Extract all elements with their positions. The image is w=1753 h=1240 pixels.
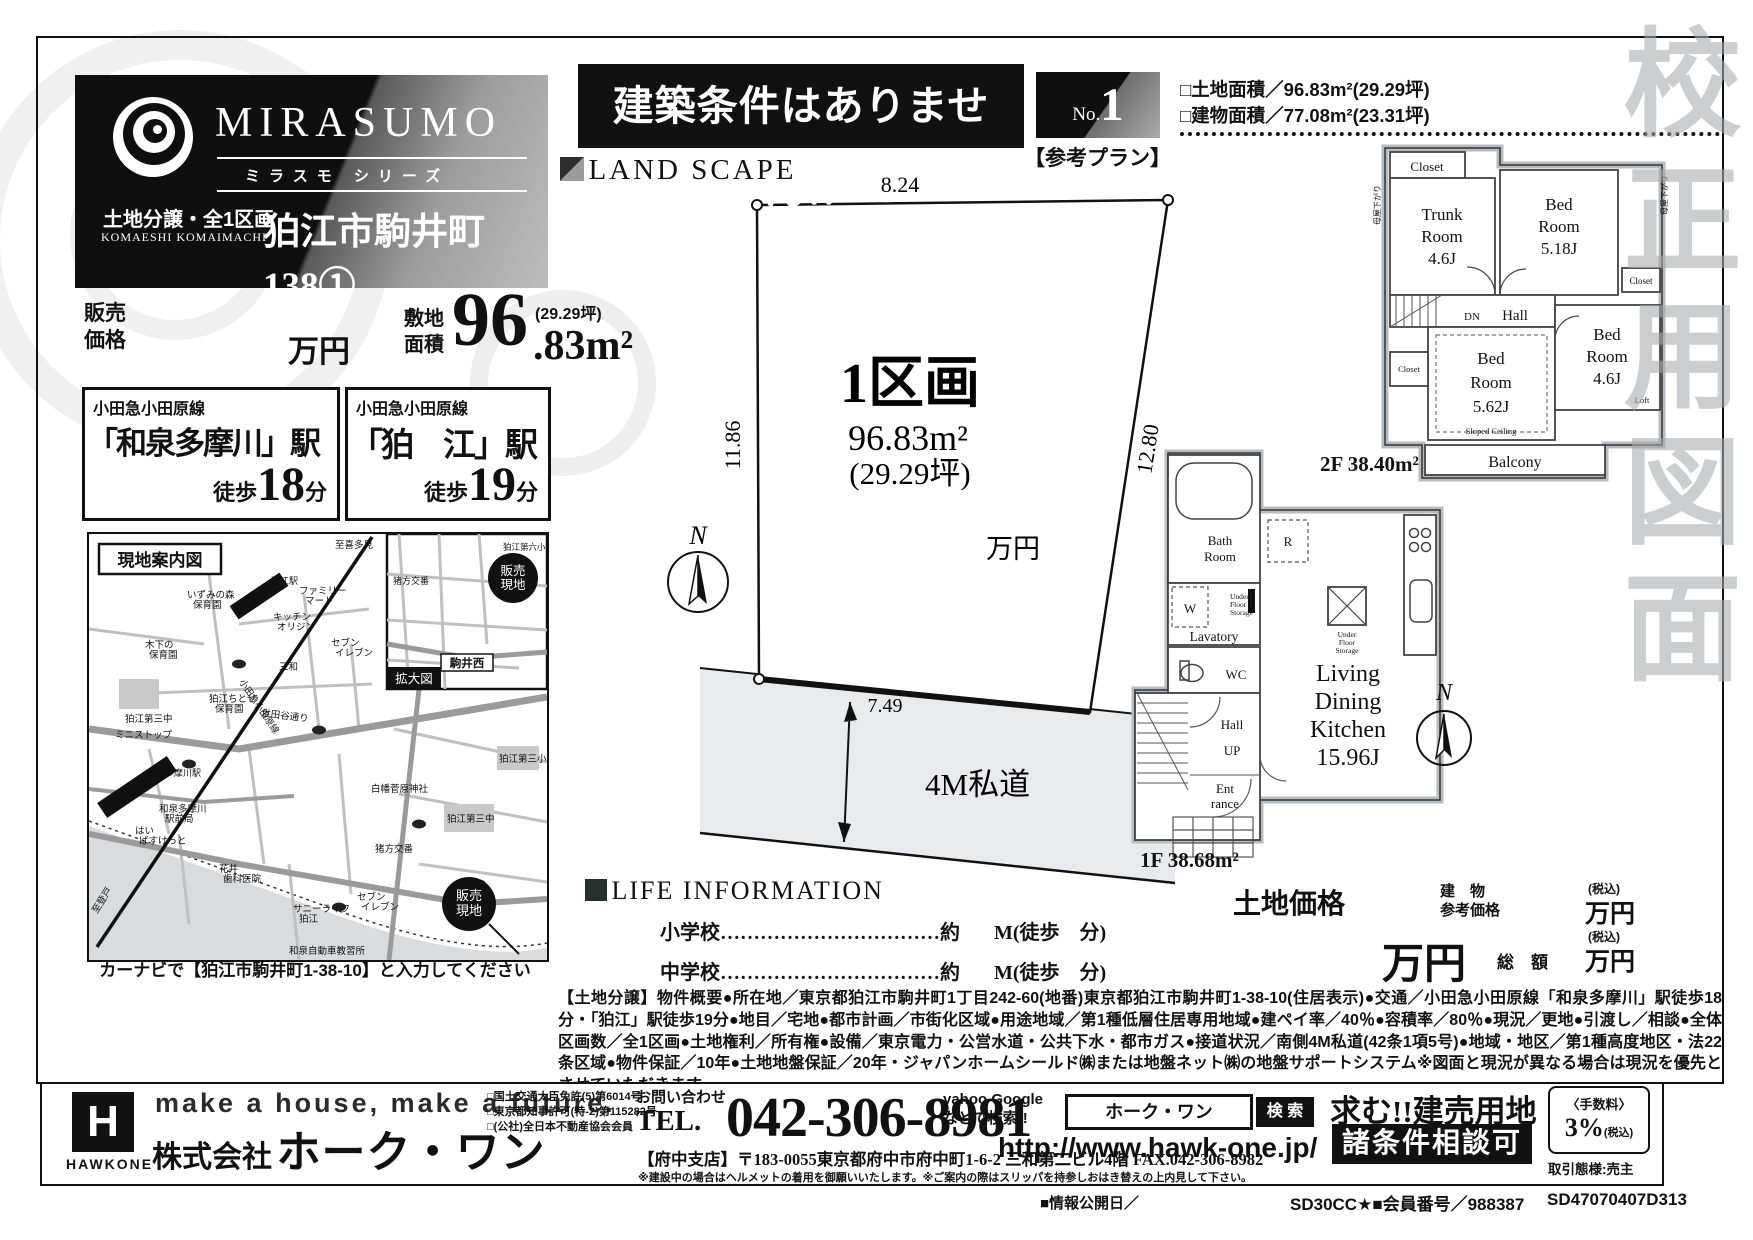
svg-text:DN: DN — [1464, 311, 1480, 323]
negotiable-label: 諸条件相談可 — [1332, 1124, 1532, 1164]
svg-text:Bed: Bed — [1593, 325, 1621, 344]
website-url: http://www.hawk-one.jp/ — [998, 1132, 1317, 1164]
hawkone-logo-name: HAWKONE — [66, 1156, 153, 1172]
svg-text:Trunk: Trunk — [1422, 205, 1463, 224]
site-area-value-small: .83m² — [533, 322, 633, 370]
station-box-izumitamagawa: 小田急小田原線 「和泉多摩川」駅 徒歩18分 — [82, 387, 340, 521]
fee-box: 〈手数料〉 3%(税込) — [1548, 1086, 1650, 1154]
inset-tag: 拡大図 — [395, 672, 433, 686]
document-code: SD47070407D313 — [1547, 1190, 1687, 1210]
svg-text:販売: 販売 — [456, 888, 482, 903]
brand-rule — [217, 190, 527, 192]
svg-text:Bath: Bath — [1208, 533, 1233, 548]
land-plot-diagram: 8.24 11.86 12.80 7.49 4M私道 1区画 96.83m² (… — [555, 150, 1215, 890]
svg-text:4.6J: 4.6J — [1428, 249, 1456, 268]
sale-site-marker: 販売 現地 — [442, 877, 519, 954]
svg-text:マート: マート — [305, 596, 334, 607]
reference-plan-label: 【参考プラン】 — [1024, 142, 1171, 172]
svg-text:猪方交番: 猪方交番 — [393, 575, 429, 586]
section-bullet-icon — [585, 879, 607, 901]
svg-text:Closet: Closet — [1629, 276, 1653, 286]
rail-line-label: 小田急小田原線 — [93, 395, 205, 419]
svg-text:保育園: 保育園 — [149, 649, 178, 661]
life-info-row: 中学校……………………………約M(徒歩 分) — [660, 956, 1106, 985]
svg-text:現地: 現地 — [500, 578, 526, 592]
svg-text:Storage: Storage — [1230, 608, 1254, 617]
floor-plan-2f: Closet Trunk Room 4.6J Bed Room 5.18J Cl… — [1370, 140, 1670, 490]
svg-text:歯科医院: 歯科医院 — [223, 873, 262, 885]
svg-text:Lavatory: Lavatory — [1190, 629, 1239, 644]
site-area-tsubo: (29.29坪) — [535, 300, 602, 324]
svg-text:狛江第三中: 狛江第三中 — [125, 713, 173, 725]
svg-text:駒井西: 駒井西 — [450, 656, 485, 670]
svg-text:母屋下がり: 母屋下がり — [1372, 185, 1382, 225]
svg-text:Hall: Hall — [1502, 308, 1528, 324]
svg-text:15.96J: 15.96J — [1316, 745, 1379, 771]
svg-text:WC: WC — [1226, 667, 1247, 682]
search-button: 検 索 — [1256, 1097, 1314, 1127]
life-info-heading: LIFE INFORMATION — [585, 876, 884, 906]
svg-text:rance: rance — [1211, 796, 1239, 811]
floor-plan-1f: Bath Room W Under Floor Storage Lavatory… — [1120, 445, 1480, 865]
svg-text:オリジン: オリジン — [277, 622, 315, 633]
road-label: 4M私道 — [925, 767, 1030, 802]
svg-text:Closet: Closet — [1410, 159, 1444, 174]
svg-text:Closet: Closet — [1398, 364, 1420, 374]
svg-text:Storage: Storage — [1336, 646, 1360, 655]
svg-text:W: W — [1184, 601, 1197, 616]
mirasumo-logo-icon — [113, 97, 193, 177]
footer-note: ※建設中の場合はヘルメットの着用を御願いいたします。※ご案内の際はスリッパを持参… — [638, 1169, 1252, 1185]
compass-icon: N — [668, 521, 728, 612]
svg-text:猪方交番: 猪方交番 — [375, 843, 414, 855]
brand-category: 土地分譲・全1区画 — [103, 203, 274, 232]
svg-text:Bed: Bed — [1545, 195, 1573, 214]
map-inset: 狛江第六小 猪方交番 販売 現地 駒井西 拡大図 — [387, 534, 547, 689]
svg-text:母屋下がり: 母屋下がり — [1659, 175, 1669, 215]
map-title: 現地案内図 — [99, 544, 221, 574]
plot-area: 96.83m² — [848, 418, 968, 458]
svg-text:Hall: Hall — [1221, 717, 1244, 732]
svg-text:Room: Room — [1586, 347, 1628, 366]
plot-tsubo: (29.29坪) — [849, 456, 970, 491]
dim-left: 11.86 — [720, 421, 745, 470]
svg-text:現地: 現地 — [456, 903, 482, 918]
building-price-unit: 万円 — [1585, 894, 1635, 930]
svg-text:三和: 三和 — [279, 662, 298, 673]
search-keyword-box: ホーク・ワン — [1065, 1094, 1253, 1130]
land-price-unit: 万円 — [1382, 930, 1466, 991]
compass-icon: N — [1412, 678, 1476, 774]
brand-name: MIRASUMO — [215, 99, 502, 147]
brand-series: ミラスモ シリーズ — [245, 165, 449, 186]
svg-text:保育園: 保育園 — [193, 599, 222, 611]
svg-text:現地案内図: 現地案内図 — [118, 550, 203, 570]
svg-text:Balcony: Balcony — [1488, 454, 1541, 471]
brand-rule — [217, 157, 527, 159]
info-date-label: ■情報公開日／ — [1040, 1192, 1139, 1213]
rail-line-label: 小田急小田原線 — [356, 395, 468, 419]
landscape-heading: LAND SCAPE — [560, 154, 797, 187]
walk-time: 徒歩19分 — [424, 457, 538, 512]
plot-name: 1区画 — [840, 353, 980, 415]
section-bullet-icon — [560, 157, 584, 181]
svg-text:イレブン: イレブン — [361, 901, 399, 913]
dim-bottom: 7.49 — [868, 695, 903, 717]
svg-text:Living: Living — [1316, 661, 1380, 687]
svg-text:Room: Room — [1538, 217, 1580, 236]
life-info-row: 小学校……………………………約M(徒歩 分) — [660, 916, 1106, 945]
flyer-page: MIRASUMO ミラスモ シリーズ 土地分譲・全1区画 KOMAESHI KO… — [0, 0, 1753, 1240]
building-ref-price-label: 建 物 参考価格 — [1440, 882, 1500, 920]
total-label: 総 額 — [1497, 948, 1548, 973]
total-price-unit: 万円 — [1585, 942, 1635, 978]
land-area-line: □土地面積／96.83m²(29.29坪) — [1180, 76, 1430, 102]
price-label: 販売 価格 — [84, 300, 126, 354]
search-hint: yahoo Google などで検索!! — [943, 1090, 1043, 1128]
svg-text:ミニストップ: ミニストップ — [115, 730, 173, 741]
svg-text:狛江第六小: 狛江第六小 — [503, 542, 546, 552]
station-box-komae: 小田急小田原線 「狛 江」駅 徒歩19分 — [345, 387, 551, 521]
license-list: □国土交通大臣免許(5)第6014号 □東京都知事許可(特-2)第115282号… — [487, 1090, 657, 1135]
svg-text:狛江: 狛江 — [299, 913, 319, 925]
svg-text:R: R — [1284, 534, 1293, 549]
svg-text:Kitchen: Kitchen — [1310, 717, 1386, 743]
area-map: 小田急小田原線 狛江駅 和泉多摩川駅 至喜多見 いずみの森 保育園 ファミリー … — [87, 532, 549, 962]
carnavi-caption: カーナビで【狛江市駒井町1-38-10】と入力してください — [80, 956, 550, 981]
svg-text:Loft: Loft — [1635, 395, 1650, 405]
svg-text:Sloped Ceiling: Sloped Ceiling — [1466, 426, 1518, 436]
svg-text:4.6J: 4.6J — [1593, 369, 1621, 388]
svg-text:狛江第三小: 狛江第三小 — [499, 753, 547, 765]
site-area-label: 敷地 面積 — [404, 306, 444, 358]
land-price-label: 土地価格 — [1233, 882, 1345, 922]
plot-price-unit: 万円 — [986, 534, 1040, 564]
svg-text:狛江第三中: 狛江第三中 — [447, 813, 495, 825]
member-number: SD30CC★■会員番号／988387 — [1290, 1190, 1524, 1215]
svg-text:Room: Room — [1470, 373, 1512, 392]
site-area-value-big: 96 — [452, 282, 528, 358]
walk-time: 徒歩18分 — [213, 457, 327, 512]
hawkone-logo-icon: H — [72, 1092, 134, 1152]
property-overview: 【土地分譲】物件概要●所在地／東京都狛江市駒井町1丁目242-60(地番)東京都… — [558, 988, 1722, 1097]
svg-text:5.62J: 5.62J — [1473, 397, 1510, 416]
svg-text:Bed: Bed — [1477, 349, 1505, 368]
svg-text:Dining: Dining — [1315, 689, 1382, 715]
dotted-separator — [1180, 132, 1720, 136]
svg-text:販売: 販売 — [500, 563, 525, 578]
svg-text:ばすけっと: ばすけっと — [139, 836, 187, 847]
svg-text:駅前局: 駅前局 — [165, 813, 194, 825]
svg-text:至喜多見: 至喜多見 — [335, 539, 374, 551]
svg-text:狛江駅: 狛江駅 — [271, 575, 298, 586]
svg-text:Ent: Ent — [1216, 781, 1234, 796]
plan-number-box: No.1 — [1036, 72, 1160, 138]
dealing-type: 取引態様:売主 — [1548, 1158, 1634, 1178]
svg-text:Room: Room — [1421, 227, 1463, 246]
svg-text:N: N — [688, 521, 708, 550]
brand-box: MIRASUMO ミラスモ シリーズ 土地分譲・全1区画 KOMAESHI KO… — [75, 75, 548, 288]
svg-text:イレブン: イレブン — [335, 647, 373, 659]
floor-area-1f: 1F 38.68m² — [1140, 848, 1239, 873]
svg-text:保育園: 保育園 — [215, 703, 244, 715]
svg-text:N: N — [1435, 680, 1454, 706]
svg-text:UP: UP — [1224, 743, 1241, 758]
no-building-condition-banner: 建築条件はありません!! — [578, 64, 1024, 148]
svg-text:白幡菅原神社: 白幡菅原神社 — [371, 783, 429, 795]
svg-text:5.18J: 5.18J — [1541, 239, 1578, 258]
svg-text:Room: Room — [1204, 549, 1236, 564]
brand-romaji: KOMAESHI KOMAIMACHI — [101, 230, 267, 245]
building-area-line: □建物面積／77.08m²(23.31坪) — [1180, 102, 1430, 128]
svg-text:和泉多摩川駅: 和泉多摩川駅 — [147, 767, 201, 778]
price-unit: 万円 — [288, 326, 350, 371]
